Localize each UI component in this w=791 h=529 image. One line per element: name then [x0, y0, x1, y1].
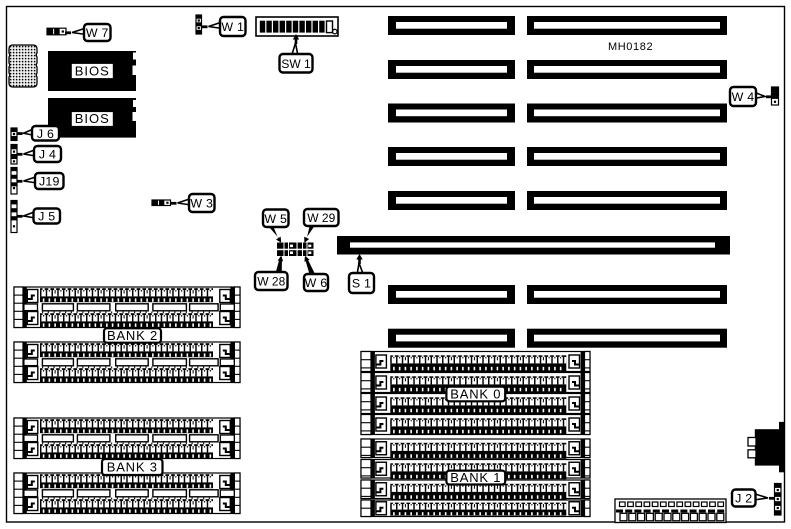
svg-text:J 6: J 6 [37, 127, 54, 141]
svg-text:MH0182: MH0182 [608, 41, 653, 53]
svg-text:BANK 3: BANK 3 [107, 460, 158, 475]
svg-text:BIOS: BIOS [75, 63, 110, 78]
svg-text:W 29: W 29 [307, 211, 335, 225]
svg-text:J 4: J 4 [39, 148, 56, 162]
svg-text:W 6: W 6 [305, 276, 328, 290]
svg-text:J 2: J 2 [735, 492, 752, 506]
svg-text:S 1: S 1 [352, 277, 371, 291]
svg-text:W 7: W 7 [86, 26, 109, 40]
svg-text:BANK 0: BANK 0 [450, 387, 501, 402]
svg-text:BIOS: BIOS [75, 111, 110, 126]
svg-text:W 1: W 1 [221, 20, 244, 34]
svg-text:W 4: W 4 [732, 90, 755, 104]
svg-text:SW 1: SW 1 [281, 57, 311, 71]
svg-text:BANK 1: BANK 1 [450, 470, 501, 485]
svg-text:J19: J19 [39, 175, 60, 189]
svg-text:W 5: W 5 [264, 212, 287, 226]
svg-text:W 28: W 28 [257, 275, 285, 289]
svg-text:BANK 2: BANK 2 [107, 328, 158, 343]
svg-text:W 3: W 3 [190, 197, 213, 211]
svg-text:J 5: J 5 [38, 210, 55, 224]
